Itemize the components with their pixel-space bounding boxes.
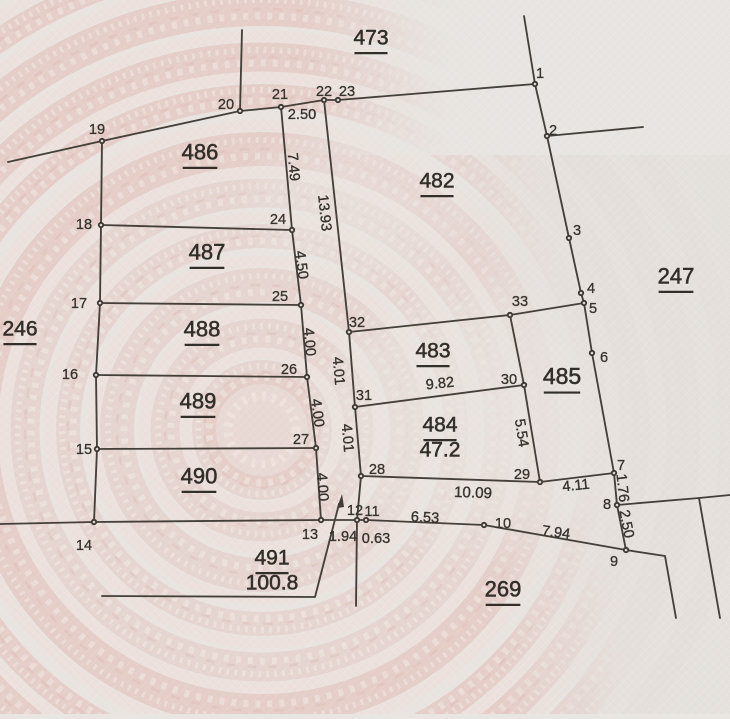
svg-text:10.09: 10.09 — [454, 484, 493, 502]
svg-text:490: 490 — [181, 464, 218, 489]
svg-text:12: 12 — [347, 503, 363, 519]
svg-text:1: 1 — [536, 66, 544, 82]
svg-text:485: 485 — [543, 363, 581, 389]
svg-text:22: 22 — [316, 84, 332, 100]
svg-text:482: 482 — [419, 170, 454, 193]
svg-text:33: 33 — [512, 294, 528, 310]
svg-text:16: 16 — [62, 367, 78, 383]
svg-text:488: 488 — [184, 317, 221, 342]
svg-text:27: 27 — [293, 432, 309, 448]
svg-text:491: 491 — [254, 547, 289, 570]
svg-text:6.53: 6.53 — [410, 509, 439, 526]
svg-text:14: 14 — [76, 538, 92, 554]
svg-text:4.00: 4.00 — [313, 472, 331, 501]
svg-text:484: 484 — [422, 414, 457, 437]
svg-text:6: 6 — [600, 350, 608, 366]
svg-text:20: 20 — [218, 97, 234, 113]
svg-text:4: 4 — [587, 281, 595, 297]
svg-text:0.63: 0.63 — [362, 531, 390, 547]
svg-text:1.76: 1.76 — [613, 473, 632, 503]
svg-text:9: 9 — [610, 554, 618, 570]
svg-text:473: 473 — [353, 27, 388, 50]
svg-text:247: 247 — [658, 264, 695, 289]
svg-text:31: 31 — [356, 388, 372, 404]
svg-text:19: 19 — [89, 122, 105, 138]
svg-text:3: 3 — [573, 223, 581, 239]
svg-text:4.00: 4.00 — [300, 327, 318, 357]
svg-text:32: 32 — [349, 315, 365, 331]
svg-text:47.2: 47.2 — [420, 438, 461, 461]
svg-text:100.8: 100.8 — [246, 571, 299, 594]
svg-text:4.11: 4.11 — [562, 477, 591, 496]
svg-text:487: 487 — [189, 240, 226, 265]
svg-text:5: 5 — [589, 301, 597, 317]
svg-text:2.50: 2.50 — [288, 107, 316, 123]
svg-text:25: 25 — [272, 289, 288, 305]
svg-text:18: 18 — [76, 217, 92, 233]
svg-text:1.94: 1.94 — [329, 529, 357, 545]
svg-text:24: 24 — [270, 212, 286, 228]
svg-text:17: 17 — [71, 296, 87, 312]
svg-text:2: 2 — [549, 123, 557, 139]
svg-text:8: 8 — [603, 497, 611, 513]
svg-text:489: 489 — [180, 389, 217, 414]
svg-text:13: 13 — [302, 527, 318, 543]
svg-text:4.01: 4.01 — [329, 356, 347, 386]
svg-text:26: 26 — [281, 362, 297, 378]
svg-text:483: 483 — [415, 340, 450, 363]
svg-text:4.01: 4.01 — [338, 423, 356, 453]
svg-text:28: 28 — [369, 462, 385, 478]
svg-text:7.49: 7.49 — [284, 152, 302, 182]
svg-text:9.82: 9.82 — [425, 375, 455, 394]
svg-text:30: 30 — [501, 372, 517, 388]
svg-text:7: 7 — [617, 458, 625, 474]
svg-text:29: 29 — [514, 467, 530, 483]
svg-text:269: 269 — [485, 577, 522, 602]
svg-text:486: 486 — [182, 140, 219, 165]
svg-text:15: 15 — [76, 442, 92, 458]
svg-text:11: 11 — [364, 504, 379, 520]
svg-text:23: 23 — [339, 84, 355, 100]
svg-text:21: 21 — [272, 87, 288, 103]
svg-text:246: 246 — [2, 318, 37, 341]
svg-text:10: 10 — [495, 516, 511, 532]
